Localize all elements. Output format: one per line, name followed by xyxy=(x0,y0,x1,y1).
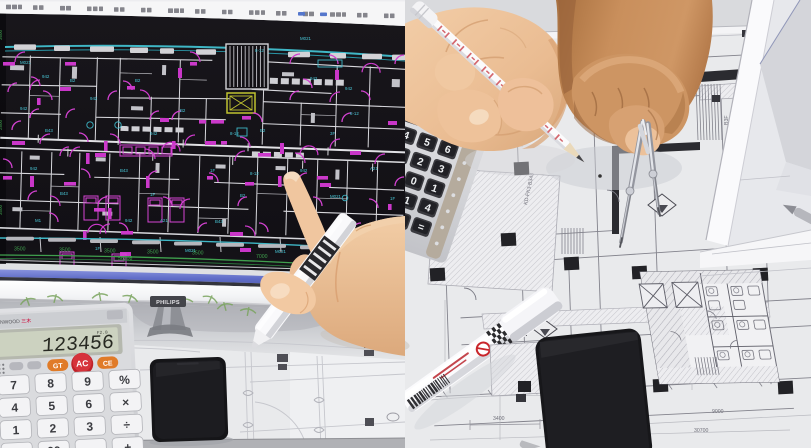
svg-text:3500: 3500 xyxy=(147,249,159,255)
svg-text:B2: B2 xyxy=(135,78,141,83)
svg-text:B43: B43 xyxy=(45,128,53,133)
svg-text:CE: CE xyxy=(103,360,113,367)
svg-text:1F: 1F xyxy=(95,246,100,251)
svg-text:3500: 3500 xyxy=(104,248,116,254)
svg-text:AC: AC xyxy=(76,358,89,369)
svg-text:B2: B2 xyxy=(180,108,186,113)
svg-text:942: 942 xyxy=(150,131,158,136)
svg-text:5: 5 xyxy=(48,399,56,413)
svg-text:%: % xyxy=(119,373,131,388)
svg-text:9: 9 xyxy=(84,374,92,388)
svg-text:M021: M021 xyxy=(20,60,32,65)
svg-text:2800: 2800 xyxy=(0,119,3,130)
svg-text:9000: 9000 xyxy=(712,409,724,415)
svg-text:3: 3 xyxy=(86,419,94,433)
svg-text:1: 1 xyxy=(12,423,20,437)
svg-text:M1: M1 xyxy=(35,218,42,223)
svg-text:1F: 1F xyxy=(150,192,155,197)
svg-text:942: 942 xyxy=(345,86,353,91)
svg-text:B43: B43 xyxy=(120,168,128,173)
svg-text:×: × xyxy=(122,395,130,409)
svg-text:8-12: 8-12 xyxy=(250,171,259,176)
svg-text:942: 942 xyxy=(30,166,38,171)
svg-text:942: 942 xyxy=(90,96,98,101)
svg-text:F2.0: F2.0 xyxy=(97,330,109,337)
svg-text:÷: ÷ xyxy=(123,418,131,432)
svg-text:942: 942 xyxy=(20,106,28,111)
svg-text:+: + xyxy=(124,440,132,448)
svg-text:4: 4 xyxy=(11,401,19,415)
svg-text:8-12: 8-12 xyxy=(230,131,239,136)
svg-text:942: 942 xyxy=(42,74,50,79)
svg-text:A21: A21 xyxy=(370,166,378,171)
svg-text:3600: 3600 xyxy=(0,29,3,40)
svg-text:3500: 3500 xyxy=(0,204,3,215)
svg-text:B43: B43 xyxy=(60,191,68,196)
svg-text:3400: 3400 xyxy=(493,416,505,422)
svg-text:7000: 7000 xyxy=(256,254,268,260)
svg-text:3500: 3500 xyxy=(192,250,204,256)
svg-text:8-12: 8-12 xyxy=(350,111,359,116)
svg-text:B2: B2 xyxy=(70,78,76,83)
svg-text:A21: A21 xyxy=(160,218,168,223)
svg-text:B43: B43 xyxy=(215,219,223,224)
svg-text:1F: 1F xyxy=(390,196,395,201)
svg-text:7: 7 xyxy=(10,378,18,392)
svg-text:942: 942 xyxy=(125,218,133,223)
svg-text:B2: B2 xyxy=(260,128,266,133)
svg-text:PHILIPS: PHILIPS xyxy=(156,300,180,306)
svg-text:B2: B2 xyxy=(240,193,246,198)
svg-text:GT: GT xyxy=(53,363,64,371)
svg-text:3500: 3500 xyxy=(59,247,71,253)
svg-text:8-12: 8-12 xyxy=(255,48,264,53)
svg-text:1F: 1F xyxy=(210,168,215,173)
svg-text:3500: 3500 xyxy=(14,246,26,252)
svg-text:M021: M021 xyxy=(300,36,312,41)
svg-text:00: 00 xyxy=(47,444,61,448)
svg-text:6: 6 xyxy=(85,397,93,411)
svg-text:8: 8 xyxy=(47,376,55,390)
svg-text:942: 942 xyxy=(310,76,318,81)
svg-text:942: 942 xyxy=(300,168,308,173)
svg-text:M021: M021 xyxy=(330,194,342,199)
svg-text:3F: 3F xyxy=(330,131,335,136)
svg-text:30700: 30700 xyxy=(694,428,709,434)
svg-text:2: 2 xyxy=(49,421,57,435)
